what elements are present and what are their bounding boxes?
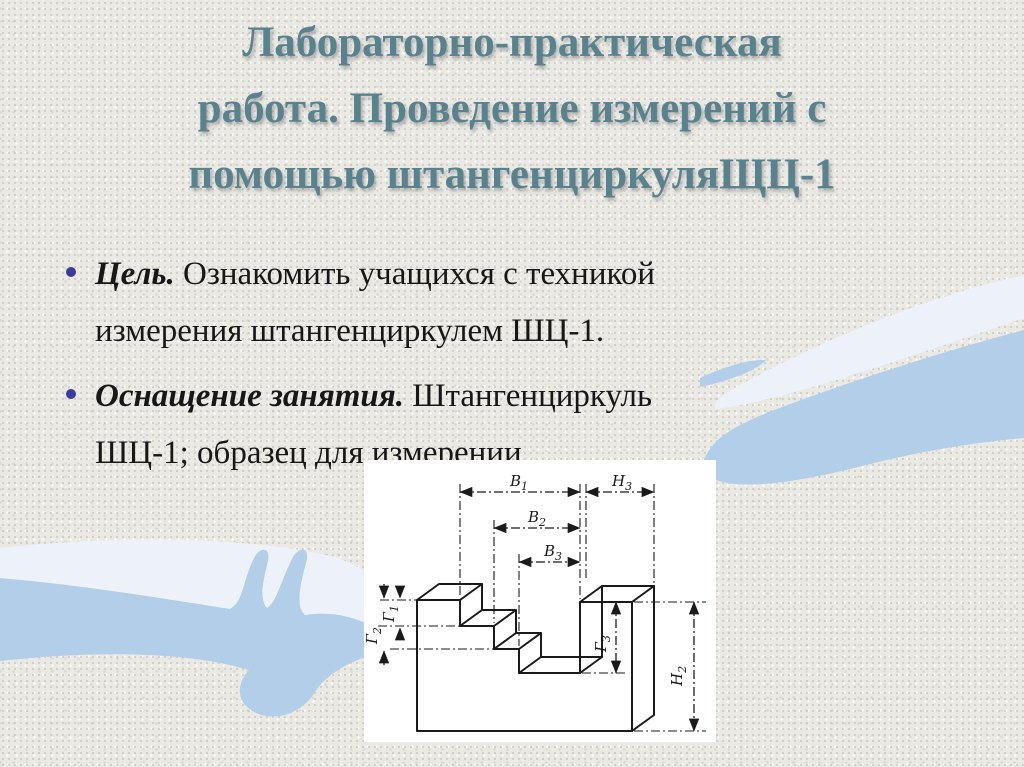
slide: Лабораторно-практическая работа. Проведе… bbox=[0, 0, 1024, 767]
dim-label-g1: Г1 bbox=[380, 605, 401, 623]
bullet-icon bbox=[66, 267, 76, 277]
dim-label-g2: Г2 bbox=[364, 627, 384, 645]
bullet-body-text: Ознакомить учащихся с техникой bbox=[175, 256, 655, 292]
bullet-line: Оснащение занятия. Штангенциркуль bbox=[95, 368, 944, 425]
title-line-2: работа. Проведение измерений с bbox=[30, 76, 994, 142]
bullet-body-text: Штангенциркуль bbox=[404, 378, 652, 414]
bullet-item-goal: Цель. Ознакомить учащихся с техникой изм… bbox=[64, 246, 944, 360]
bullet-body-text: измерения штангенциркулем ШЦ-1. bbox=[95, 313, 604, 349]
bullet-line: Цель. Ознакомить учащихся с техникой bbox=[95, 246, 944, 303]
left-hands-highlight-shape bbox=[0, 540, 372, 662]
title-line-3: помощью штангенциркуляЩЦ-1 bbox=[30, 142, 994, 208]
part-outline bbox=[417, 584, 654, 731]
bullet-icon bbox=[66, 389, 76, 399]
measurement-sample-drawing: В1 Н3 В2 В3 Г1 Г2 Г3 Н2 bbox=[364, 460, 716, 742]
dim-label-b1: В1 bbox=[509, 472, 528, 493]
dim-label-h2: Н2 bbox=[668, 666, 689, 687]
dim-label-g3: Г3 bbox=[592, 635, 613, 653]
bullet-lead-text: Цель. bbox=[95, 256, 175, 292]
left-hands-shape bbox=[0, 550, 372, 717]
technical-drawing-panel: В1 Н3 В2 В3 Г1 Г2 Г3 Н2 bbox=[364, 460, 716, 742]
dim-label-b3: В3 bbox=[543, 542, 562, 563]
slide-title: Лабораторно-практическая работа. Проведе… bbox=[30, 10, 994, 208]
dim-label-h3: Н3 bbox=[611, 472, 632, 493]
bullet-lead-text: Оснащение занятия. bbox=[95, 378, 404, 414]
bullet-line: измерения штангенциркулем ШЦ-1. bbox=[95, 303, 944, 360]
dim-label-b2: В2 bbox=[527, 508, 546, 529]
title-line-1: Лабораторно-практическая bbox=[30, 10, 994, 76]
